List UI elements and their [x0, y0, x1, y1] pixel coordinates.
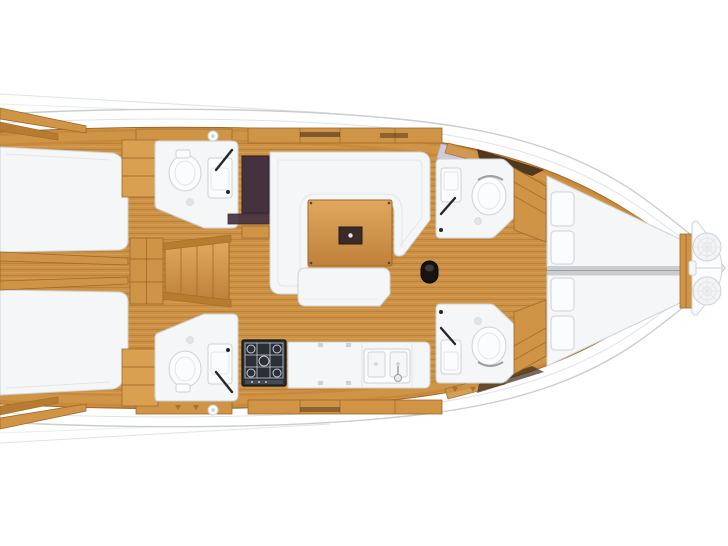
stove-icon [242, 340, 286, 386]
settee-bench [298, 268, 390, 306]
aft-cabin-port [0, 147, 128, 252]
companionway-steps-icon [163, 235, 231, 307]
mast-step-icon [421, 261, 438, 283]
shower-drain-icon [475, 318, 482, 325]
toilet-icon [169, 155, 201, 191]
yacht-floor-plan [0, 0, 728, 546]
side-lockers-starboard [136, 400, 442, 414]
rope-coil-icon [693, 277, 721, 305]
rope-coil-icon [693, 233, 721, 261]
dinette-table-icon [308, 200, 392, 266]
companionway [130, 235, 231, 307]
double-sink-icon [364, 349, 410, 383]
shower-drain-icon [475, 218, 482, 225]
galley [242, 340, 430, 388]
shower-drain-icon [187, 337, 194, 344]
floor-plan-canvas [0, 0, 728, 546]
shower-drain-icon [187, 199, 194, 206]
anchor-locker [689, 221, 722, 315]
toilet-icon [169, 351, 201, 387]
aft-cabin-starboard [0, 290, 128, 395]
